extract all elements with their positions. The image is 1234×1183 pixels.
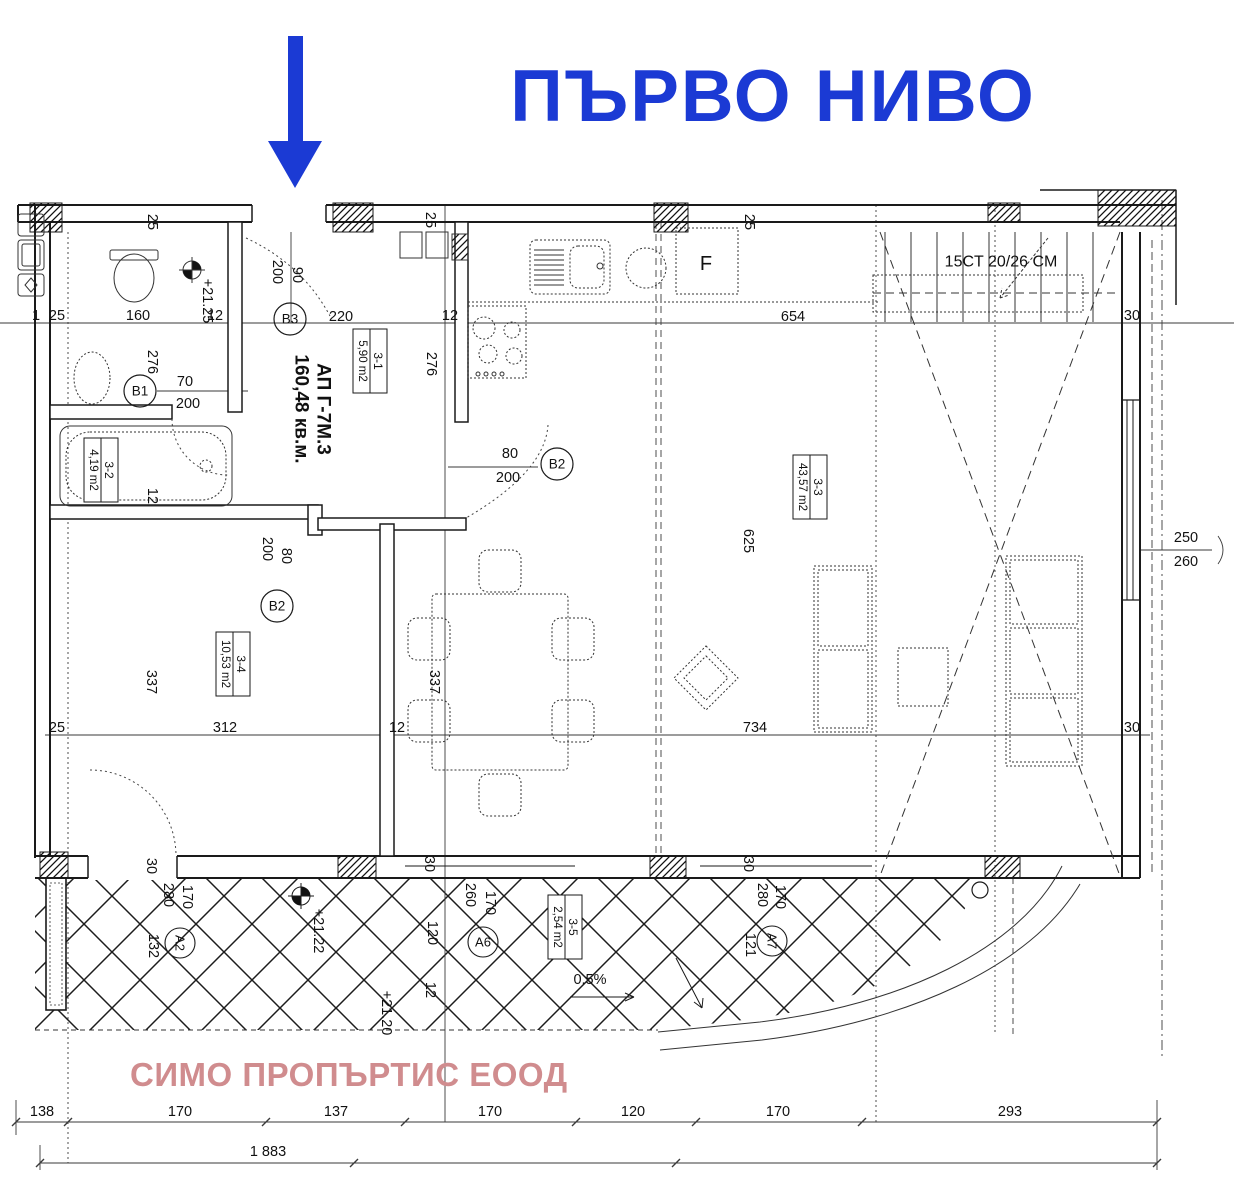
apartment-id-label: АП Г-7М.3: [313, 363, 334, 455]
dimension-label: 200: [259, 537, 275, 561]
dimension-label: 120: [621, 1104, 645, 1120]
coffee-table: [898, 648, 948, 706]
dimension-label: 260: [1174, 554, 1198, 570]
stair-note-label: 15CT 20/26 CM: [945, 254, 1058, 271]
floor-plan-page: 1251601222012654302520090252527627670200…: [0, 0, 1234, 1183]
dimension-label: 170: [482, 891, 498, 915]
dimension-label: 276: [423, 352, 439, 376]
dimension-label: 160: [126, 308, 150, 324]
elevation-label: +21.22: [310, 909, 326, 954]
dimension-label: 137: [324, 1104, 348, 1120]
dimension-label: 170: [478, 1104, 502, 1120]
sofa-2: [1006, 556, 1082, 766]
toilet-bowl: [114, 254, 154, 302]
dimension-label: 337: [143, 670, 159, 694]
grid-marker-label: A2: [173, 935, 188, 951]
kitchen-bowl: [626, 248, 666, 288]
dimension-label: 337: [426, 670, 442, 694]
room-number-label: 3-3: [811, 478, 825, 496]
dimension-label: 120: [424, 921, 440, 945]
dimension-label: 80: [502, 446, 518, 462]
dimension-label: 12: [422, 982, 438, 998]
dimension-label: 170: [168, 1104, 192, 1120]
dimension-label: 276: [144, 350, 160, 374]
dimension-label: 138: [30, 1104, 54, 1120]
dimension-label: 170: [766, 1104, 790, 1120]
room-number-label: 3-2: [102, 461, 116, 479]
dimension-label: 30: [1124, 308, 1140, 324]
double-height-cross: [880, 232, 1120, 876]
dimension-label: 132: [145, 934, 161, 958]
stove: [468, 306, 526, 378]
room-area-label: 2,54 m2: [551, 906, 563, 948]
dimension-label: 25: [49, 720, 65, 736]
dimension-label: 12: [144, 488, 160, 504]
door-marker-label: B2: [549, 457, 566, 472]
dimension-label: 70: [177, 374, 193, 390]
elevation-label: +21.20: [378, 991, 394, 1036]
dimension-label: 170: [179, 885, 195, 909]
door-marker-label: B1: [132, 384, 149, 399]
dimension-label: 90: [289, 267, 305, 283]
kitchen-fixtures: [400, 228, 878, 378]
dimension-label: 30: [143, 858, 159, 874]
sofa: [814, 566, 872, 732]
dimension-label: 30: [421, 856, 437, 872]
dimension-label: 250: [1174, 530, 1198, 546]
dimension-label: 1 883: [250, 1144, 286, 1160]
dimension-label: 734: [743, 720, 767, 736]
dimension-label: 30: [740, 856, 756, 872]
down-arrow-icon: [262, 36, 328, 194]
dimension-label: 1: [32, 308, 40, 324]
dimension-label: 200: [496, 470, 520, 486]
dimension-label: 200: [269, 260, 285, 284]
dimension-label: 12: [389, 720, 405, 736]
dimension-label: 654: [781, 309, 805, 325]
dimension-label: 220: [329, 309, 353, 325]
dimension-label: 25: [49, 308, 65, 324]
dimension-label: 293: [998, 1104, 1022, 1120]
washbasin: [74, 352, 110, 404]
elevation-label: +21.25: [199, 279, 215, 324]
watermark: СИМО ПРОПЪРТИС ЕООД: [130, 1056, 540, 1094]
walls: [18, 190, 1176, 880]
dimension-label: 80: [278, 548, 294, 564]
dimension-label: 25: [741, 214, 757, 230]
dimension-label: 25: [422, 212, 438, 228]
room-area-label: 43,57 m2: [796, 463, 808, 511]
dimension-label: 30: [1124, 720, 1140, 736]
room-number-label: 3-5: [566, 918, 580, 936]
room-area-label: 10,53 m2: [219, 640, 231, 688]
dimension-label: 625: [740, 529, 756, 553]
door-marker-label: B3: [282, 312, 299, 327]
room-number-label: 3-1: [371, 352, 385, 370]
dining-table: [432, 594, 568, 770]
room-area-label: 5,90 m2: [356, 340, 368, 382]
page-title: ПЪРВО НИВО: [498, 60, 1048, 133]
room-number-label: 3-4: [234, 655, 248, 673]
floor-plan-drawing: 1251601222012654302520090252527627670200…: [0, 0, 1234, 1183]
dimension-label: 170: [772, 885, 788, 909]
door-marker-label: B2: [269, 599, 286, 614]
dimension-label: 25: [144, 214, 160, 230]
dimension-label: 12: [442, 308, 458, 324]
dimension-label: 280: [160, 883, 176, 907]
apartment-area-label: 160,48 кв.м.: [291, 354, 312, 463]
living-furniture: [674, 556, 1082, 766]
door-swings: [90, 238, 548, 856]
dimension-label: 280: [754, 883, 770, 907]
dimension-label: 260: [462, 883, 478, 907]
appliance-label: F: [700, 253, 712, 275]
dimension-label: 312: [213, 720, 237, 736]
dimension-label: 0.5%: [573, 972, 606, 988]
grid-marker-label: A7: [765, 933, 780, 949]
terrace-point-circle: [972, 882, 988, 898]
dimension-label: 200: [176, 396, 200, 412]
dimension-label: 121: [742, 933, 758, 957]
room-area-label: 4,19 m2: [87, 449, 99, 491]
toilet-tank: [110, 250, 158, 260]
staircase: [873, 232, 1120, 322]
grid-marker-label: A6: [475, 935, 491, 950]
